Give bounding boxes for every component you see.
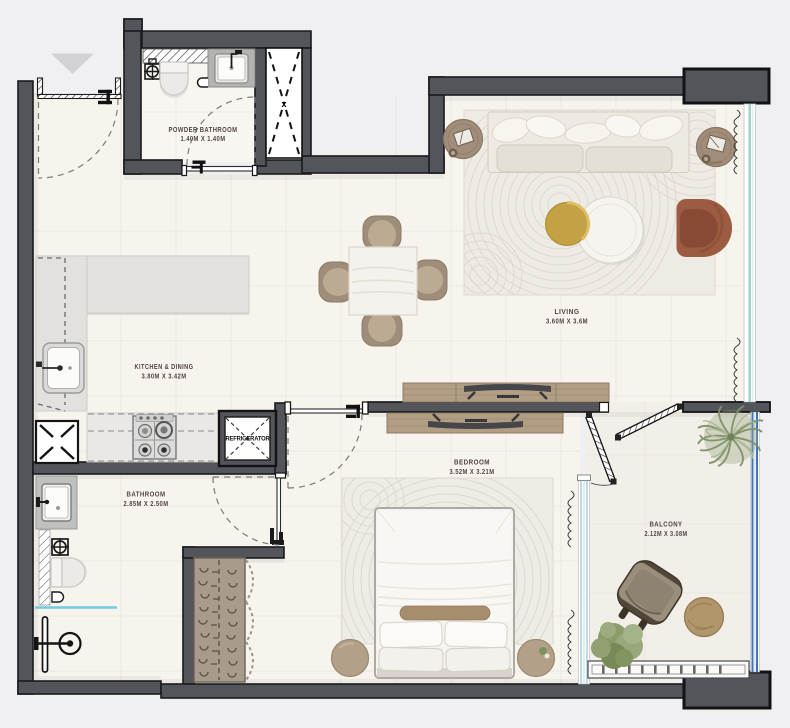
svg-text:BATHROOM: BATHROOM (127, 490, 166, 499)
svg-text:LIVING: LIVING (555, 307, 580, 316)
svg-text:POWDER BATHROOM: POWDER BATHROOM (169, 125, 238, 134)
svg-text:3.80M X 3.42M: 3.80M X 3.42M (142, 372, 187, 381)
svg-text:BALCONY: BALCONY (650, 520, 683, 529)
svg-text:2.85M X 2.50M: 2.85M X 2.50M (124, 499, 169, 508)
svg-text:3.60M X 3.6M: 3.60M X 3.6M (546, 317, 588, 326)
svg-text:BEDROOM: BEDROOM (454, 458, 490, 467)
svg-text:3.52M X 3.21M: 3.52M X 3.21M (450, 467, 495, 476)
svg-text:1.40M X 1.40M: 1.40M X 1.40M (181, 134, 226, 143)
svg-text:KITCHEN & DINING: KITCHEN & DINING (135, 362, 194, 371)
svg-text:REFRIGERATOR: REFRIGERATOR (226, 437, 271, 443)
svg-text:x: x (281, 99, 286, 109)
svg-text:2.12M X 3.08M: 2.12M X 3.08M (645, 529, 688, 538)
